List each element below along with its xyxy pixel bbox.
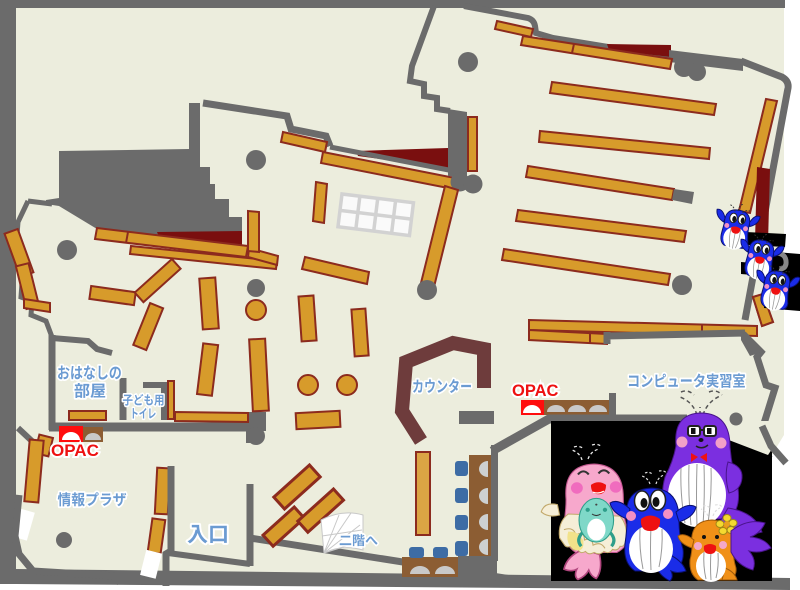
svg-text:OPAC: OPAC (51, 441, 99, 460)
svg-text:OPAC: OPAC (512, 382, 559, 400)
